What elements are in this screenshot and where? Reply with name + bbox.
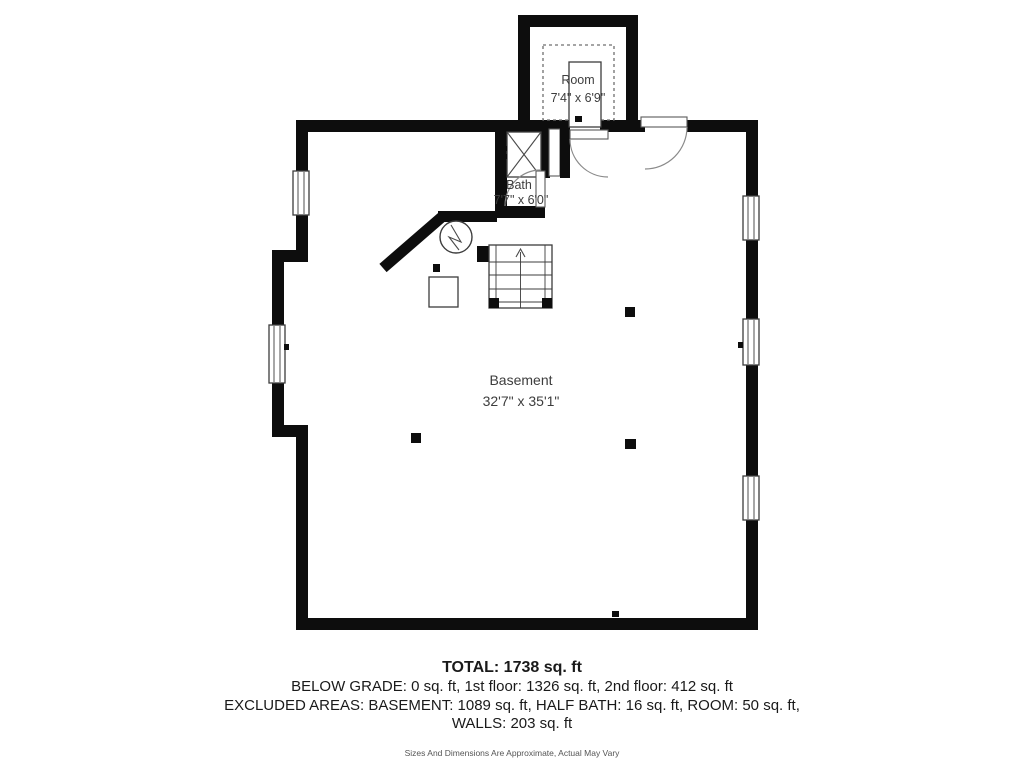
- hall-door-leaf: [549, 129, 560, 176]
- wall-tick: [521, 68, 527, 74]
- disclaimer-text: Sizes And Dimensions Are Approximate, Ac…: [0, 748, 1024, 758]
- staircase: [489, 245, 552, 308]
- bath-wall-bottom: [495, 206, 545, 218]
- grade-areas-text: BELOW GRADE: 0 sq. ft, 1st floor: 1326 s…: [0, 678, 1024, 697]
- windows: [269, 171, 759, 520]
- entry-door-swing-arc: [645, 127, 687, 169]
- utility-box: [429, 277, 458, 307]
- door-stub-wall: [560, 128, 570, 178]
- closet-door-leaf: [570, 130, 608, 139]
- support-post: [411, 433, 421, 443]
- room-label: Room: [561, 73, 594, 87]
- room-dimensions: 7'4" x 6'9": [551, 91, 606, 105]
- columns-and-ticks: [284, 307, 743, 617]
- wall-bottom: [296, 618, 758, 630]
- window: [743, 196, 759, 240]
- floorplan-drawing: Room 7'4" x 6'9" Bath 7'7" x 6'0": [0, 0, 1024, 768]
- support-post: [433, 264, 440, 272]
- wall-tick: [738, 342, 743, 348]
- wall-diagonal: [383, 216, 443, 268]
- floorplan-page: Room 7'4" x 6'9" Bath 7'7" x 6'0": [0, 0, 1024, 768]
- stairs-newel-post: [489, 298, 499, 308]
- window: [269, 325, 285, 383]
- window: [743, 319, 759, 365]
- support-post: [625, 439, 636, 449]
- entry-door-leaf: [641, 117, 687, 127]
- basement-dimensions: 32'7" x 35'1": [483, 393, 560, 409]
- shower-valve: [502, 146, 507, 151]
- total-area-text: TOTAL: 1738 sq. ft: [0, 658, 1024, 678]
- top-room: Room 7'4" x 6'9": [518, 15, 638, 132]
- excluded-areas-text: EXCLUDED AREAS: BASEMENT: 1089 sq. ft, H…: [0, 697, 1024, 716]
- walls-area-text: WALLS: 203 sq. ft: [0, 715, 1024, 734]
- area-summary: TOTAL: 1738 sq. ft BELOW GRADE: 0 sq. ft…: [0, 658, 1024, 758]
- wall-tick: [575, 116, 582, 122]
- wall-tick: [615, 125, 621, 130]
- bath-label: Bath: [506, 178, 532, 192]
- support-post: [625, 307, 635, 317]
- wall-tick: [284, 344, 289, 350]
- wall-interior: [438, 211, 497, 222]
- stairs-newel-post: [542, 298, 552, 308]
- water-heater-icon: [440, 221, 472, 253]
- bath-room: Bath 7'7" x 6'0": [494, 132, 550, 218]
- utility-area: [383, 211, 497, 307]
- basement-labels: Basement 32'7" x 35'1": [483, 372, 560, 409]
- wall-left-lower: [296, 425, 308, 630]
- bath-dimensions: 7'7" x 6'0": [494, 193, 549, 207]
- basement-label: Basement: [489, 372, 552, 388]
- window: [743, 476, 759, 520]
- wall-tick: [627, 68, 633, 74]
- window: [293, 171, 309, 215]
- shower-valve: [502, 154, 507, 159]
- room-wall-top: [518, 15, 638, 27]
- closet-door-swing-arc: [570, 139, 608, 177]
- wall-tick: [612, 611, 619, 617]
